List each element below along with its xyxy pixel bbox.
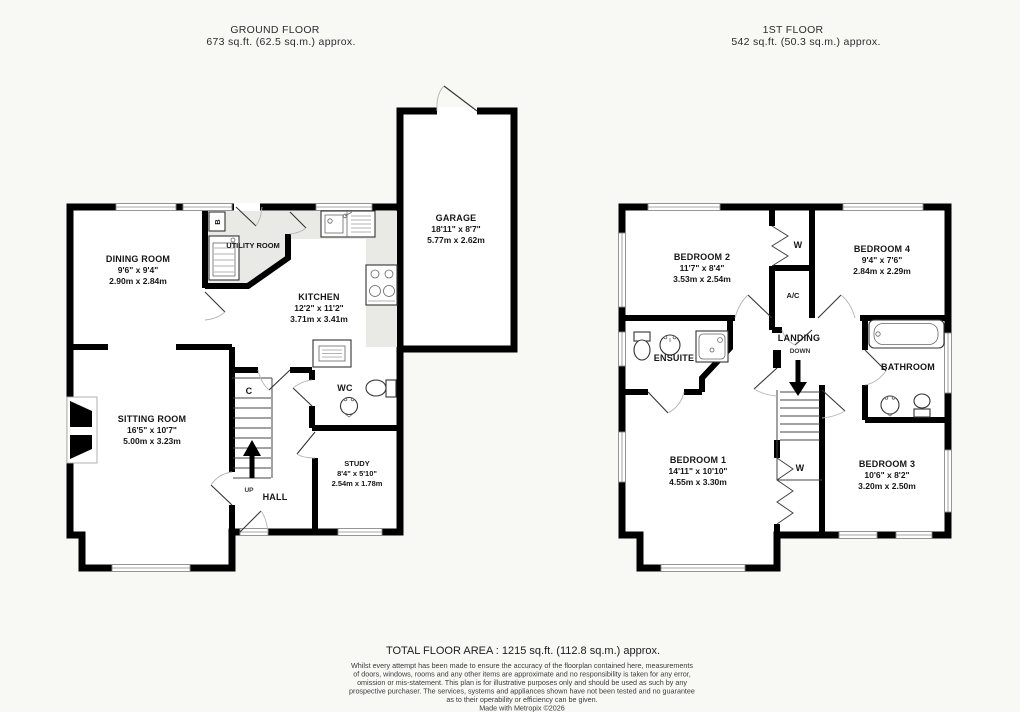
bedroom1-imperial: 14'11" x 10'10"	[669, 466, 728, 476]
footer: TOTAL FLOOR AREA : 1215 sq.ft. (112.8 sq…	[349, 645, 695, 712]
airing-cupboard-label: A/C	[787, 291, 801, 300]
dining-room-imperial: 9'6" x 9'4"	[118, 265, 158, 275]
ground-floor-plan: DINING ROOM 9'6" x 9'4" 2.90m x 2.84m UT…	[67, 86, 514, 572]
bedroom2-label: BEDROOM 2	[674, 252, 730, 262]
bedroom4-metric: 2.84m x 2.29m	[853, 266, 911, 276]
sitting-room-label: SITTING ROOM	[118, 414, 186, 424]
ensuite-basin-icon	[660, 335, 680, 355]
study-metric: 2.54m x 1.78m	[332, 479, 383, 488]
sitting-room-metric: 5.00m x 3.23m	[123, 436, 181, 446]
study-label: STUDY	[344, 459, 369, 468]
bathroom-label: BATHROOM	[881, 362, 935, 372]
bedroom3-metric: 3.20m x 2.50m	[858, 481, 916, 491]
kitchen-metric: 3.71m x 3.41m	[290, 314, 348, 324]
bedroom1-label: BEDROOM 1	[670, 455, 726, 465]
first-floor-title: 1ST FLOOR	[763, 24, 824, 36]
toilet-icon	[366, 380, 396, 397]
first-floor-plan: BEDROOM 2 11'7" x 8'4" 3.53m x 2.54m W B…	[619, 204, 952, 572]
credit-line: Made with Metropix ©2026	[479, 704, 565, 712]
kitchen-label: KITCHEN	[298, 292, 339, 302]
utility-room-label: UTILITY ROOM	[226, 241, 280, 250]
down-arrow-shaft	[796, 360, 801, 384]
up-arrow-shaft	[250, 454, 255, 478]
cupboard-label: C	[246, 386, 253, 396]
bedroom4-label: BEDROOM 4	[854, 244, 910, 254]
bedroom1-metric: 4.55m x 3.30m	[669, 477, 727, 487]
back-door-opening	[234, 203, 260, 211]
dining-room-metric: 2.90m x 2.84m	[109, 276, 167, 286]
bath-icon	[869, 320, 944, 348]
bathroom-toilet-icon	[914, 394, 930, 417]
boiler-label: B	[213, 219, 222, 225]
wardrobe-bottom-label: W	[796, 463, 805, 473]
dining-room-label: DINING ROOM	[106, 254, 170, 264]
garage-label: GARAGE	[436, 213, 477, 223]
garage-door-opening	[437, 107, 477, 115]
hall-label: HALL	[263, 492, 288, 502]
shower-icon	[696, 331, 728, 362]
floorplan-canvas: GROUND FLOOR 673 sq.ft. (62.5 sq.m.) app…	[0, 0, 1020, 712]
landing-label: LANDING	[778, 333, 820, 343]
floorplan-page: GROUND FLOOR 673 sq.ft. (62.5 sq.m.) app…	[0, 0, 1020, 712]
bedroom2-imperial: 11'7" x 8'4"	[680, 263, 725, 273]
ensuite-toilet-icon	[634, 332, 650, 360]
bedroom4-imperial: 9'4" x 7'6"	[862, 255, 902, 265]
ground-floor-title: GROUND FLOOR	[230, 24, 319, 36]
wardrobe-top-label: W	[794, 240, 803, 250]
bedroom2-metric: 3.53m x 2.54m	[673, 274, 731, 284]
first-floor-area: 542 sq.ft. (50.3 sq.m.) approx.	[731, 36, 880, 48]
bedroom3-label: BEDROOM 3	[859, 459, 915, 469]
hob-icon	[366, 265, 397, 305]
ground-floor-header: GROUND FLOOR 673 sq.ft. (62.5 sq.m.) app…	[206, 24, 355, 48]
wc-label: WC	[337, 383, 353, 393]
ensuite-label: ENSUITE	[654, 353, 694, 363]
up-label: UP	[244, 487, 254, 494]
study-imperial: 8'4" x 5'10"	[337, 469, 377, 478]
first-floor-header: 1ST FLOOR 542 sq.ft. (50.3 sq.m.) approx…	[731, 24, 880, 48]
fireplace-icon	[67, 397, 97, 463]
sitting-room-imperial: 16'5" x 10'7"	[127, 425, 177, 435]
total-floor-area: TOTAL FLOOR AREA : 1215 sq.ft. (112.8 sq…	[386, 645, 660, 657]
kitchen-imperial: 12'2" x 11'2"	[294, 303, 343, 313]
garage-imperial: 18'11" x 8'7"	[431, 224, 480, 234]
oven-icon	[313, 340, 351, 367]
garage-metric: 5.77m x 2.62m	[427, 235, 485, 245]
kitchen-sink-icon	[321, 211, 375, 237]
ground-floor-area: 673 sq.ft. (62.5 sq.m.) approx.	[206, 36, 355, 48]
bedroom3-imperial: 10'6" x 8'2"	[864, 470, 909, 480]
down-label: DOWN	[790, 348, 811, 355]
